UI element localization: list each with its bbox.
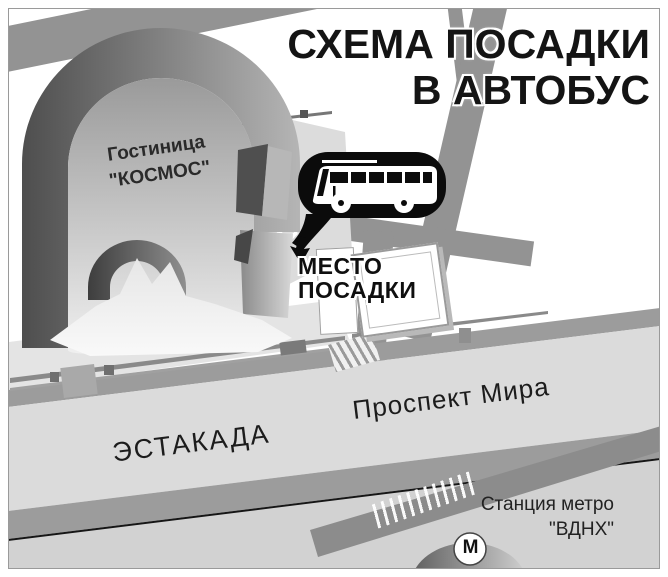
boarding-line-1: МЕСТО (298, 254, 416, 278)
page-title: СХЕМА ПОСАДКИ В АВТОБУС (287, 22, 650, 114)
bus-windows (330, 172, 432, 183)
metro-line-1: Станция метро (436, 493, 614, 518)
title-line-1: СХЕМА ПОСАДКИ (287, 22, 650, 68)
map-frame: СХЕМА ПОСАДКИ В АВТОБУС Гостиница "КОСМО… (8, 8, 660, 569)
boarding-line-2: ПОСАДКИ (298, 278, 416, 302)
boarding-place-label: МЕСТО ПОСАДКИ (298, 254, 416, 303)
title-line-2: В АВТОБУС (287, 68, 650, 114)
metro-station-label: Станция метро "ВДНХ" (436, 493, 614, 542)
map-world: СХЕМА ПОСАДКИ В АВТОБУС Гостиница "КОСМО… (8, 8, 660, 569)
metro-logo-letter: М (460, 537, 481, 559)
speech-bubble (290, 152, 446, 264)
hotel-building (22, 28, 300, 356)
map-canvas: СХЕМА ПОСАДКИ В АВТОБУС Гостиница "КОСМО… (0, 0, 668, 577)
